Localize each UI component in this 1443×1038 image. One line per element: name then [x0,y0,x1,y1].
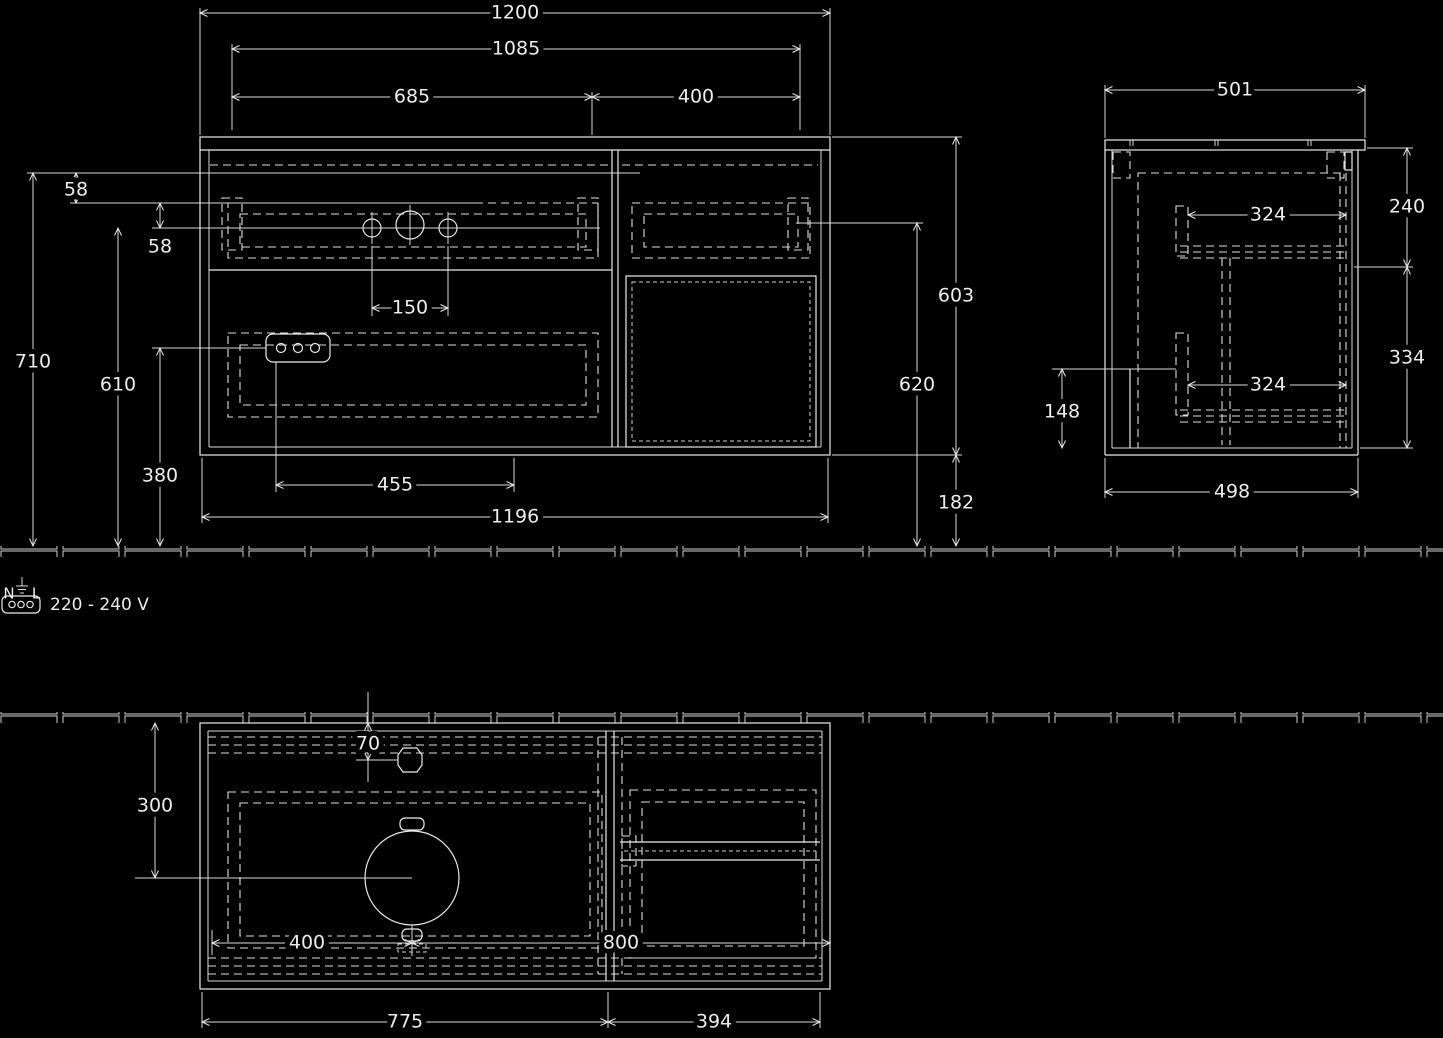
voltage-label: 220 - 240 V [50,595,149,615]
dim-front-mid-height: 620 [899,374,935,396]
dim-front-socket-span: 455 [377,474,413,496]
dim-front-left-width: 685 [394,86,430,108]
dim-plan-drain-right: 800 [603,932,639,954]
dim-side-upper-depth: 324 [1250,204,1286,226]
technical-drawing-canvas: 1200 1085 685 400 58 58 710 610 380 150 … [0,0,1443,1038]
dim-side-recess-height: 148 [1044,401,1080,423]
dim-front-right-width: 400 [678,86,714,108]
dim-front-height-holes: 610 [100,374,136,396]
dim-front-inner-width: 1085 [492,38,540,60]
dim-plan-left-width: 775 [387,1011,423,1033]
wall-hatch-strip-lower [0,712,1443,723]
dim-front-bottom-gap: 182 [938,492,974,514]
dim-plan-right-width: 394 [696,1011,732,1033]
dim-plan-tap-offset: 70 [356,733,380,755]
dim-side-total-depth: 501 [1217,79,1253,101]
dim-side-upper-height: 240 [1389,196,1425,218]
dim-plan-drain-left: 400 [289,932,325,954]
dim-front-top-offset-2: 58 [148,236,172,258]
dim-front-cabinet-height: 603 [938,285,974,307]
dim-front-height-socket: 380 [142,465,178,487]
vanity-dimension-drawing: 1200 1085 685 400 58 58 710 610 380 150 … [0,0,1443,1038]
dim-side-body-depth: 498 [1214,481,1250,503]
terminal-n-label: N [3,585,14,603]
wall-hatch-strip-upper [0,546,1443,557]
dim-front-total-width: 1200 [491,2,539,24]
dim-front-top-offset-1: 58 [64,179,88,201]
dim-plan-drain-offset: 300 [137,795,173,817]
dim-side-lower-height: 334 [1389,347,1425,369]
dim-side-lower-depth: 324 [1250,374,1286,396]
dim-front-body-width: 1196 [491,506,539,528]
dim-front-tap-spacing: 150 [392,297,428,319]
dim-front-height-top: 710 [15,351,51,373]
